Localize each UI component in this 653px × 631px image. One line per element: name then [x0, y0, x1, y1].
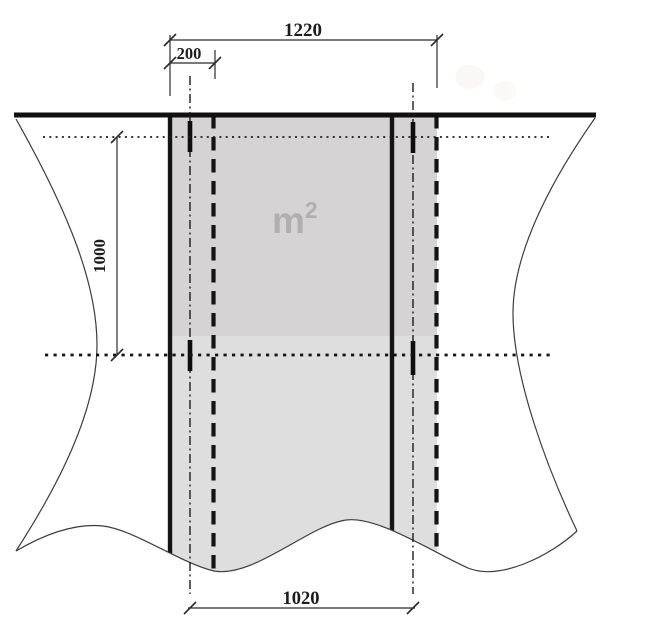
- dimension-label-1020: 1020: [283, 589, 320, 609]
- diagram-canvas: 1220 200 1000 1020 m2: [0, 0, 653, 631]
- square-meter-base: m: [272, 200, 305, 241]
- dimension-label-1220: 1220: [284, 20, 322, 41]
- dimension-drawing: 1220 200 1000 1020 m2: [0, 0, 653, 631]
- dimension-label-1000: 1000: [90, 239, 109, 273]
- square-meter-exponent: 2: [305, 197, 318, 223]
- dimension-label-200: 200: [177, 44, 202, 63]
